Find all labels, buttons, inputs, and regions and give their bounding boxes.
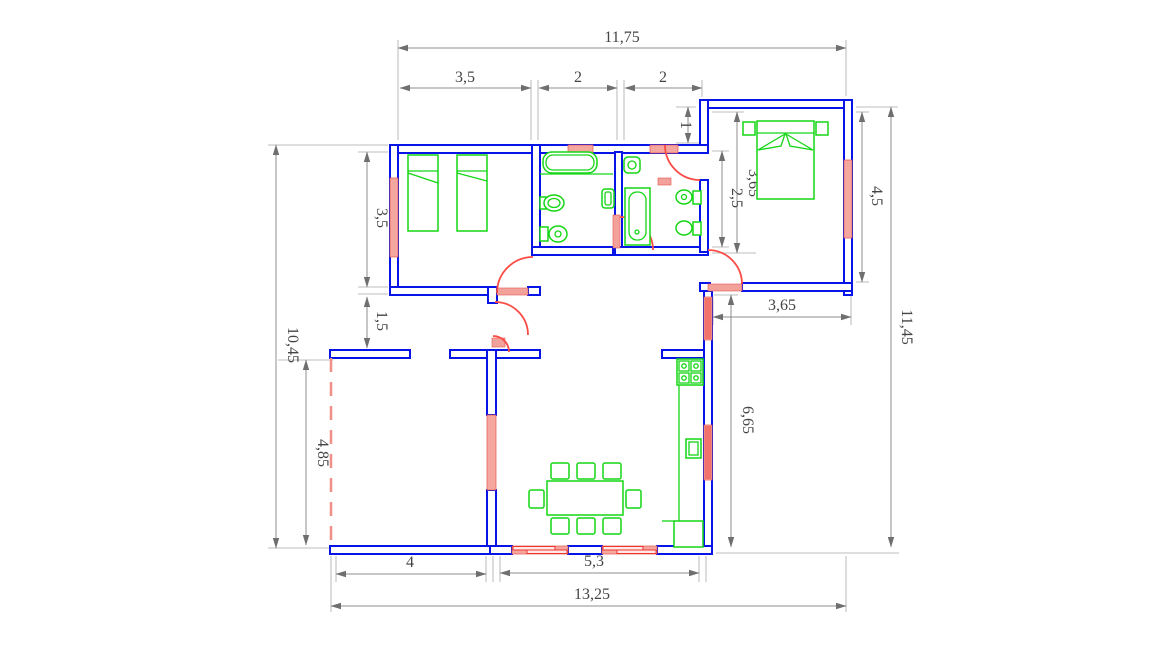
door-leaf <box>613 215 620 248</box>
wall-segment <box>390 145 540 153</box>
wall-segment <box>488 287 497 303</box>
chair <box>551 463 569 479</box>
door-arc <box>495 302 528 335</box>
dim-bottom-living-width: 5,3 <box>584 553 604 570</box>
wall-segment <box>700 100 852 108</box>
window-sill <box>527 550 567 554</box>
wall-segment <box>528 287 540 295</box>
dim-bedroom2-right-height: 4,5 <box>868 186 885 206</box>
dim-bedroom1-left-height: 3,5 <box>373 208 390 228</box>
wall-segment <box>487 490 496 550</box>
chair <box>626 490 641 508</box>
chair <box>603 463 621 479</box>
nightstand <box>743 122 755 135</box>
window-sill <box>513 547 555 551</box>
counter <box>674 521 703 547</box>
dim-top-bath1: 2 <box>574 69 582 86</box>
window <box>390 178 398 257</box>
wall-segment <box>532 247 613 255</box>
small-sink <box>624 157 640 173</box>
window <box>844 160 852 238</box>
chair <box>551 518 569 534</box>
door-threshold <box>497 288 528 295</box>
bed-single <box>457 155 487 231</box>
dim-bedroom2-stub: 1 <box>677 121 694 129</box>
chair <box>603 518 621 534</box>
chair <box>529 490 544 508</box>
dining-table <box>547 481 623 515</box>
window <box>487 415 496 490</box>
dim-hall-height: 1,5 <box>373 311 390 331</box>
dim-right-overall: 11,45 <box>898 309 915 344</box>
dim-bedroom2-inner-height2: 2,5 <box>728 188 745 208</box>
dim-left-overall: 10,45 <box>284 327 301 363</box>
toilet-tank <box>693 191 701 204</box>
dim-top-bedroom1: 3,5 <box>455 69 475 86</box>
window-sill <box>617 550 656 554</box>
wall-segment <box>568 546 602 554</box>
wall-segment <box>330 546 490 554</box>
stove <box>677 359 703 385</box>
wall-segment <box>487 350 496 415</box>
bidet-bowl <box>676 221 692 235</box>
chair <box>577 518 595 534</box>
toilet-bowl <box>676 190 692 204</box>
dim-right-mid-width: 3,65 <box>768 297 796 314</box>
window <box>650 145 678 153</box>
wall-segment <box>700 100 708 145</box>
dim-top-bath2: 2 <box>659 69 667 86</box>
dim-left-room-height: 4,85 <box>314 439 331 467</box>
toilet-bowl <box>549 226 567 242</box>
toilet-tank <box>540 227 548 241</box>
dim-right-lower-height: 6,65 <box>739 406 756 434</box>
dim-bottom-overall: 13,25 <box>574 586 610 603</box>
nightstand <box>816 122 828 135</box>
wall-segment <box>615 247 708 255</box>
dim-top-overall: 11,75 <box>604 29 639 46</box>
floor-plan-canvas: 11,75 3,5 2 2 1 3,65 2,5 4,5 11,45 3,5 1… <box>0 0 1170 658</box>
window-sill <box>603 547 643 551</box>
chair <box>577 463 595 479</box>
floor-plan-drawing: 11,75 3,5 2 2 1 3,65 2,5 4,5 11,45 3,5 1… <box>0 0 1170 658</box>
dim-bottom-left-width: 4 <box>406 554 414 571</box>
door-threshold <box>658 178 671 185</box>
sink-bowl <box>544 195 564 211</box>
bidet-tank <box>693 222 701 235</box>
door-threshold <box>708 284 742 291</box>
wall-segment <box>742 283 852 291</box>
bed-single <box>408 155 438 231</box>
wall-segment <box>390 287 488 295</box>
wall-segment <box>330 350 410 358</box>
wall-segment <box>490 546 512 554</box>
wall-segment <box>662 350 704 358</box>
dimension-labels: 11,75 3,5 2 2 1 3,65 2,5 4,5 11,45 3,5 1… <box>284 29 915 603</box>
door-arc <box>708 250 742 284</box>
wall-segment <box>532 145 540 255</box>
